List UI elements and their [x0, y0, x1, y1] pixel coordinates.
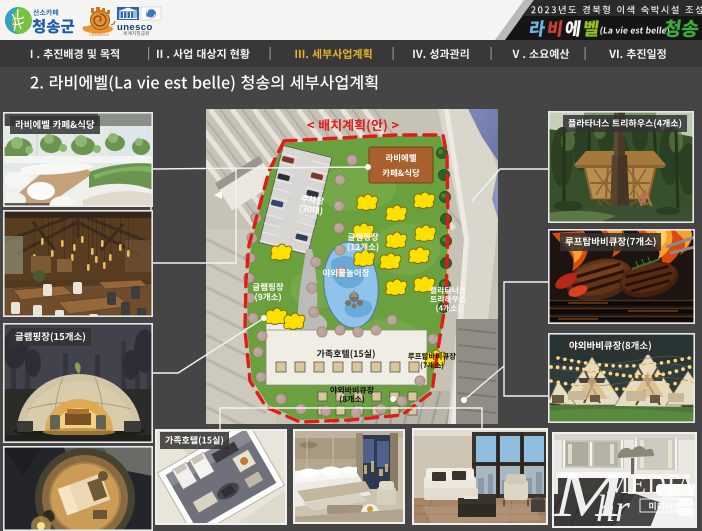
svg-text:cittaslow: cittaslow [89, 32, 109, 37]
